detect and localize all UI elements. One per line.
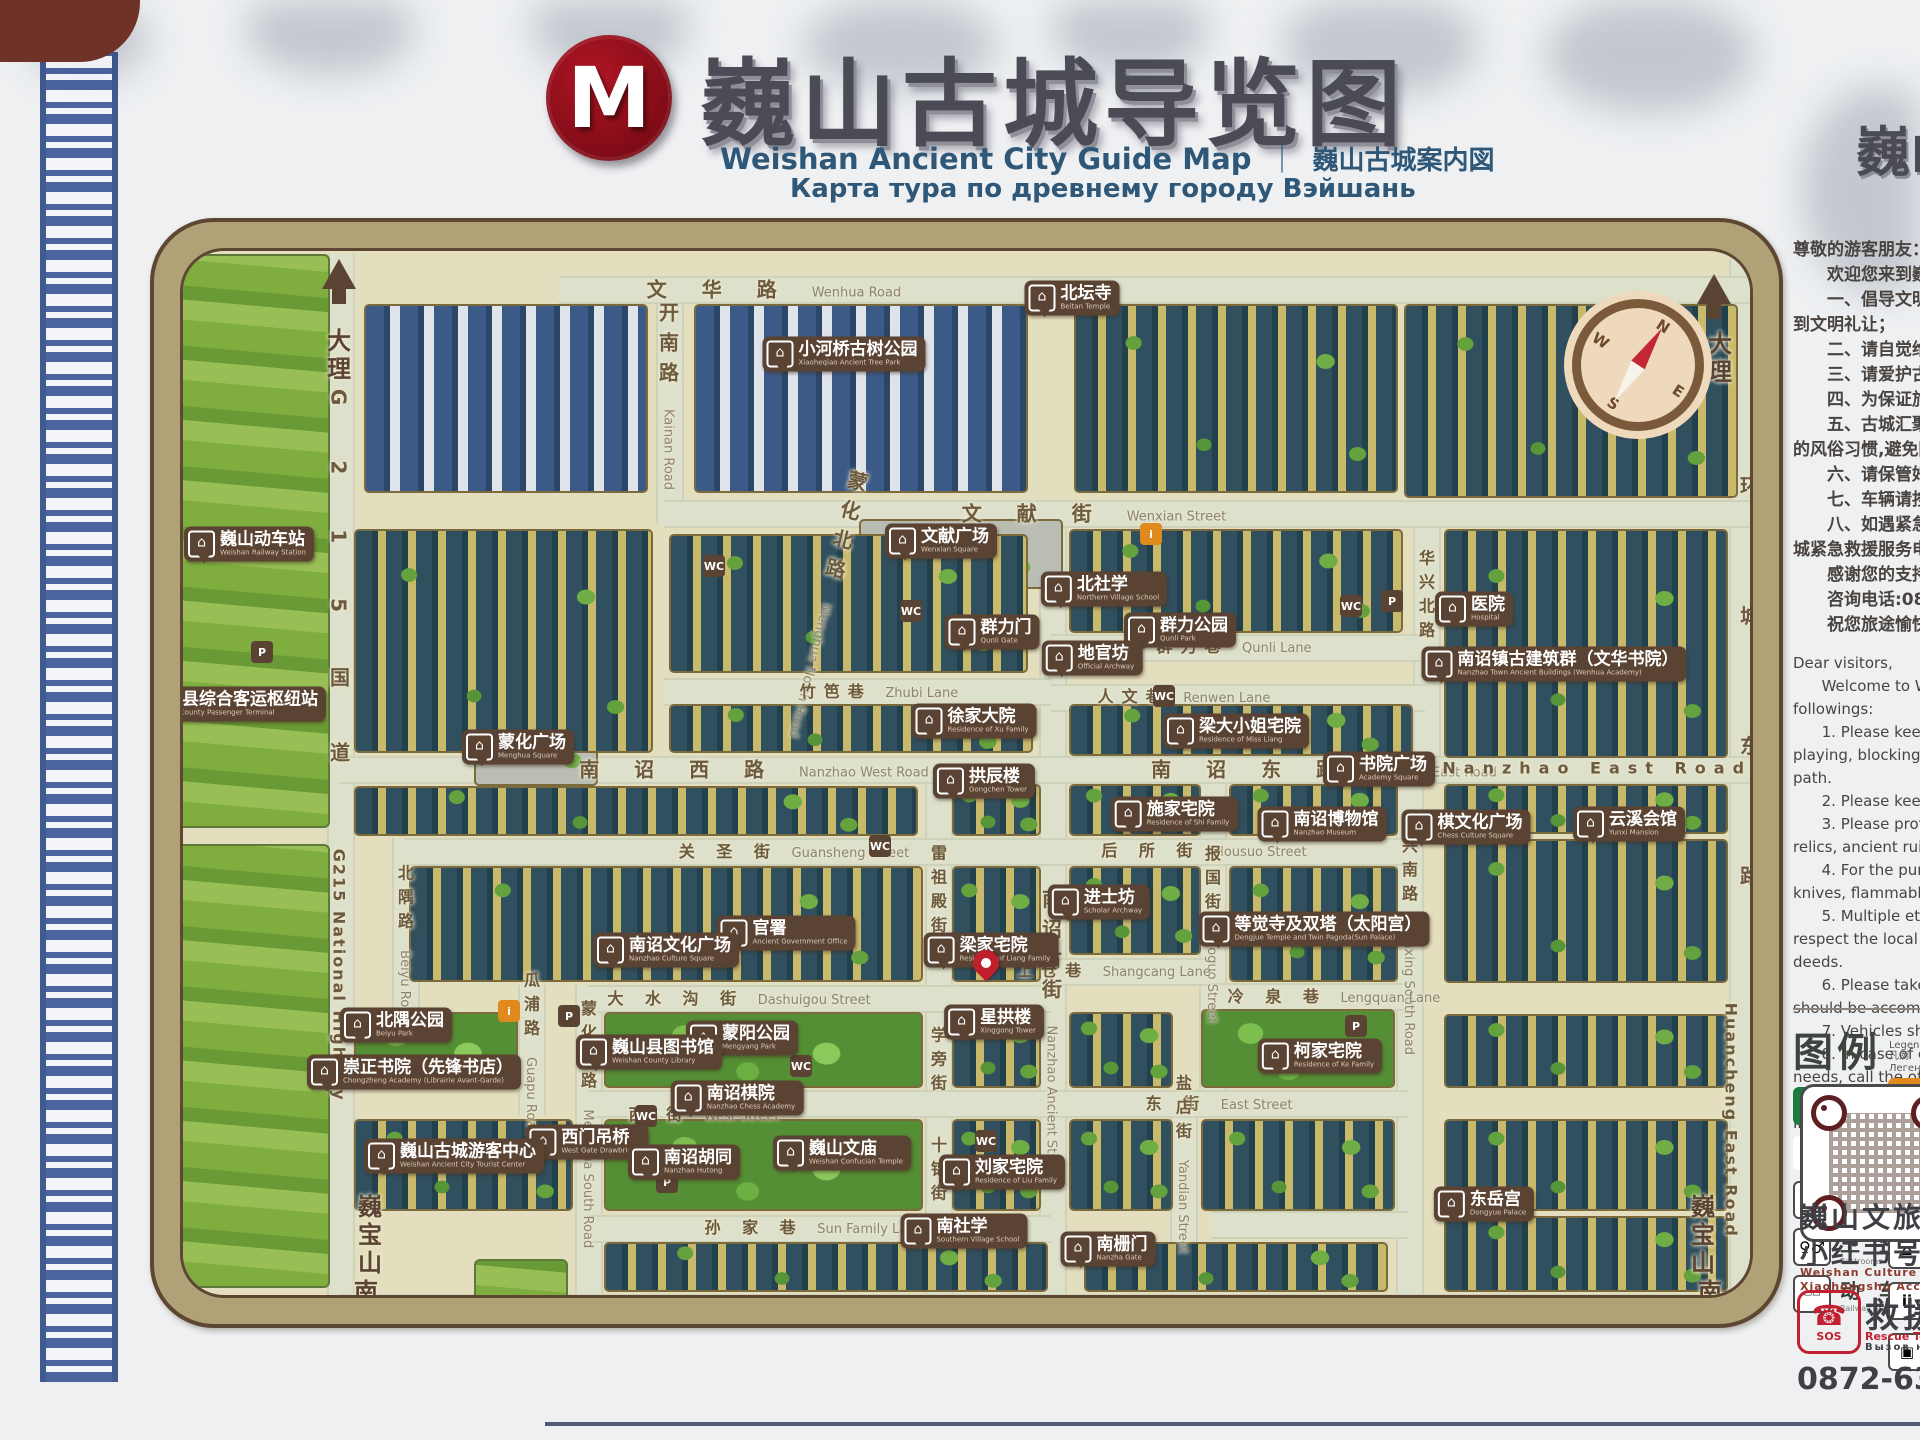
poi-pictogram-icon: ⌂ <box>580 1039 607 1066</box>
poi-pictogram-icon: ⌂ <box>937 768 964 795</box>
notice-zh-line: 八、如遇紧急状况请 <box>1793 513 1920 538</box>
road-label: 竹笆巷 Zhubi Lane <box>800 678 958 702</box>
poi-label[interactable]: ⌂ 北坛寺Beitan Temple <box>1025 281 1120 316</box>
notice-zh-line: 到文明礼让； <box>1793 313 1920 338</box>
poi-label[interactable]: ⌂ 等觉寺及双塔（太阳宫）Dengjue Temple and Twin Pag… <box>1199 912 1430 947</box>
notice-zh-line: 感谢您的支持与配合 <box>1793 563 1920 588</box>
map-canvas: NE SW 文 华 路 Wenhua Road开南路 Kainan Road文 … <box>180 248 1753 1298</box>
sign-bottom-edge <box>545 1422 1920 1426</box>
amenity-icon: i <box>498 1000 520 1022</box>
amenity-icon: WC <box>703 555 725 577</box>
poi-pictogram-icon: ⌂ <box>632 1149 659 1176</box>
title-divider: ｜ <box>1267 142 1296 176</box>
road-label: 文 献 街 Wenxian Street <box>962 498 1226 527</box>
direction-label: 巍宝山 <box>1684 1194 1719 1278</box>
poi-label[interactable]: ⌂ 南诏胡同Nanzhao Hutong <box>628 1145 740 1180</box>
road-label: Nanzhao East Road <box>1442 759 1753 778</box>
poi-pictogram-icon: ⌂ <box>368 1143 395 1170</box>
amenity-icon: P <box>1345 1015 1367 1037</box>
poi-label[interactable]: ⌂ 南诏镇古建筑群（文华书院）Nanzhao Town Ancient Buil… <box>1422 647 1687 682</box>
poi-label[interactable]: ⌂ 巍山文庙Weishan Confucian Temple <box>773 1136 911 1171</box>
notice-en-line: playing, blocking roads and <box>1793 744 1920 767</box>
poi-pictogram-icon: ⌂ <box>948 1009 975 1036</box>
poi-pictogram-icon: ⌂ <box>675 1085 702 1112</box>
poi-label[interactable]: ⌂ 南栅门Nanzha Gate <box>1061 1232 1156 1267</box>
poi-pictogram-icon: ⌂ <box>1065 1236 1092 1263</box>
map-frame: NE SW 文 华 路 Wenhua Road开南路 Kainan Road文 … <box>150 218 1783 1328</box>
legend-title-jp: 凡例 <box>1889 1051 1920 1063</box>
notice-zh-line: 咨询电话:0872—63 <box>1793 588 1920 613</box>
poi-label[interactable]: ⌂ 梁大小姐宅院Residence of Miss Liang <box>1163 714 1309 749</box>
notice-zh-line: 祝您旅途愉快！ <box>1793 613 1920 638</box>
title-ru: Карта тура по древнему городу Вэйшань <box>790 174 1416 204</box>
panel-divider <box>1793 1008 1920 1010</box>
legend-title-en: Legend <box>1889 1040 1920 1052</box>
poi-pictogram-icon: ⌂ <box>767 341 794 368</box>
road-label: 北隅路 Beiyu Road <box>392 865 416 1024</box>
poi-label[interactable]: ⌂ 柯家宅院Residence of Ke Family <box>1258 1039 1382 1074</box>
poi-label[interactable]: ⌂ 书院广场Academy Square <box>1323 752 1435 787</box>
poi-label[interactable]: ⌂ 北隅公园Beiyu Park <box>340 1008 452 1043</box>
poi-label[interactable]: ⌂ 地官坊Official Archway <box>1042 641 1143 676</box>
notice-en-line: 3. Please protect the re <box>1793 813 1920 836</box>
poi-pictogram-icon: ⌂ <box>1327 756 1354 783</box>
poi-pictogram-icon: ⌂ <box>1438 1191 1465 1218</box>
road-label: 东 街 East Street <box>1146 1090 1293 1114</box>
sign-left-decorative-border <box>40 52 118 1382</box>
direction-label: 大理 <box>1701 331 1736 387</box>
notice-en-line: knives, flammable and explo <box>1793 882 1920 905</box>
poi-label[interactable]: ⌂ 群力门Qunli Gate <box>945 615 1040 650</box>
notice-en-line: 5. Multiple ethnic cultu <box>1793 905 1920 928</box>
poi-label[interactable]: ⌂ 巍山县综合客运枢纽站Weishan County Passenger Ter… <box>180 687 326 722</box>
poi-label[interactable]: ⌂ 南诏博物馆Nanzhao Museum <box>1258 807 1387 842</box>
map-scenery <box>694 304 1028 493</box>
poi-label[interactable]: ⌂ 蒙化广场Menghua Square <box>462 730 574 765</box>
road-label: 孙 家 巷 Sun Family Lane <box>704 1214 923 1238</box>
map-scenery <box>364 304 648 493</box>
notice-zh-line: 四、为保证旅客安全 <box>1793 388 1920 413</box>
poi-pictogram-icon: ⌂ <box>1045 576 1072 603</box>
road-label: G215国道 <box>325 389 354 879</box>
notice-zh-line: 尊敬的游客朋友： <box>1793 238 1920 263</box>
notice-en-line: path. <box>1793 767 1920 790</box>
poi-pictogram-icon: ⌂ <box>1167 718 1194 745</box>
amenity-icon: i <box>1140 523 1162 545</box>
poi-label[interactable]: ⌂ 医院Hospital <box>1435 592 1513 627</box>
map-scenery <box>1201 1119 1395 1211</box>
poi-pictogram-icon: ⌂ <box>466 734 493 761</box>
map-scenery <box>354 529 653 753</box>
road-label: 大 水 沟 街 Dashuigou Street <box>607 985 870 1009</box>
poi-pictogram-icon: ⌂ <box>943 1159 970 1186</box>
poi-pictogram-icon: ⌂ <box>1046 645 1073 672</box>
notice-zh-line: 欢迎您来到巍山古城 <box>1793 263 1920 288</box>
poi-label[interactable]: ⌂ 巍山动车站Weishan Railway Station <box>184 527 314 562</box>
poi-label[interactable]: ⌂ 文献广场Wenxian Square <box>885 524 997 559</box>
map-scenery <box>604 1242 1048 1292</box>
notice-en-line: Dear visitors, <box>1793 652 1920 675</box>
notice-en-line: respect the local customs d <box>1793 928 1920 951</box>
poi-pictogram-icon: ⌂ <box>1029 285 1056 312</box>
poi-label[interactable]: ⌂ 南社学Southern Village School <box>900 1214 1027 1249</box>
notice-zh-line: 三、请爱护古城内的 <box>1793 363 1920 388</box>
road-label: 华兴北路 <box>1413 549 1437 659</box>
map-scenery <box>1074 304 1398 493</box>
poi-label[interactable]: ⌂ 进士坊Scholar Archway <box>1048 885 1150 920</box>
poi-pictogram-icon: ⌂ <box>1439 596 1466 623</box>
poi-pictogram-icon: ⌂ <box>928 937 955 964</box>
poi-pictogram-icon: ⌂ <box>311 1059 338 1086</box>
amenity-icon: WC <box>1153 685 1175 707</box>
notice-zh-line: 一、倡导文明游览， <box>1793 288 1920 313</box>
road-label: Huancheng East Road <box>1722 1003 1741 1246</box>
amenity-icon: P <box>558 1005 580 1027</box>
poi-label[interactable]: ⌂ 南诏文化广场Nanzhao Culture Square <box>593 933 739 968</box>
poi-label[interactable]: ⌂ 小河桥古树公园Xiaoheqiao Ancient Tree Park <box>763 337 926 372</box>
poi-label[interactable]: ⌂ 巍山古城游客中心Weishan Ancient City Tourist C… <box>364 1139 544 1174</box>
road-label: 开南路 Kainan Road <box>654 302 683 490</box>
poi-pictogram-icon: ⌂ <box>777 1140 804 1167</box>
notice-zh-line: 五、古城汇聚了多民 <box>1793 413 1920 438</box>
poi-pictogram-icon: ⌂ <box>1406 814 1433 841</box>
notice-en-line: Welcome to Weishan A <box>1793 675 1920 698</box>
road-label: 学旁街 <box>925 1026 949 1112</box>
direction-label: 南涧 <box>347 1279 382 1298</box>
road-label: 人文巷 Renwen Lane <box>1098 683 1271 707</box>
qr-caption-zh1: 巍山文旅 <box>1800 1196 1920 1236</box>
notice-zh-line: 二、请自觉维护古城 <box>1793 338 1920 363</box>
road-label: 瓜浦路 Guapu Road <box>518 971 542 1136</box>
notice-zh-line: 六、请保管好随身携 <box>1793 463 1920 488</box>
poi-label[interactable]: ⌂ 拱辰楼Gongchen Tower <box>933 764 1035 799</box>
poi-label[interactable]: ⌂ 北社学Northern Village School <box>1041 572 1167 607</box>
notice-en-line: relics, ancient ruins and anc <box>1793 836 1920 859</box>
qr-caption-en1: Weishan Culture & Tourism <box>1800 1266 1920 1279</box>
map-scenery <box>1444 839 1728 983</box>
road-label: 南 诏 西 路 Nanzhao West Road <box>579 754 929 783</box>
poi-pictogram-icon: ⌂ <box>1115 801 1142 828</box>
amenity-icon: P <box>251 641 273 663</box>
notice-en-line: deeds. <box>1793 951 1920 974</box>
road-label: 冷 泉 巷 Lengquan Lane <box>1228 983 1441 1007</box>
poi-label[interactable]: ⌂ 施家宅院Residence of Shi Family <box>1111 797 1238 832</box>
adjacent-sign-title-partial: 巍山 <box>1856 108 1920 187</box>
poi-label[interactable]: ⌂ 星拱楼Xinggong Tower <box>944 1005 1044 1040</box>
poi-label[interactable]: ⌂ 东岳宫Dongyue Palace <box>1434 1187 1534 1222</box>
sos-phone-icon: ☎SOS <box>1797 1290 1861 1354</box>
notice-en-line: 4. For the purpose of sa <box>1793 859 1920 882</box>
poi-pictogram-icon: ⌂ <box>916 708 943 735</box>
poi-label[interactable]: ⌂ 南诏棋院Nanzhao Chess Academy <box>671 1081 804 1116</box>
poi-label[interactable]: ⌂ 徐家大院Residence of Xu Family <box>912 704 1037 739</box>
amenity-icon: WC <box>1340 595 1362 617</box>
legend-title: 图例 <box>1793 1020 1881 1078</box>
poi-pictogram-icon: ⌂ <box>1426 651 1453 678</box>
rescue-phone-number: 0872-635293 <box>1797 1362 1920 1397</box>
notice-zh-line: 七、车辆请按规定的 <box>1793 488 1920 513</box>
amenity-icon: P <box>1381 590 1403 612</box>
title-en: Weishan Ancient City Guide Map <box>720 142 1251 176</box>
amenity-icon: WC <box>790 1055 812 1077</box>
m-logo: M <box>546 35 672 161</box>
poi-pictogram-icon: ⌂ <box>949 619 976 646</box>
notice-en-line: followings: <box>1793 698 1920 721</box>
title-jp: 巍山古城案内図 <box>1312 146 1494 176</box>
map-scenery <box>474 1259 568 1298</box>
map-scenery <box>1211 1211 1408 1239</box>
amenity-icon: WC <box>869 835 891 857</box>
amenity-icon: WC <box>975 1130 997 1152</box>
poi-label[interactable]: ⌂ 棋文化广场Chess Culture Square <box>1402 810 1531 845</box>
page-subtitle: Weishan Ancient City Guide Map｜巍山古城案内図 <box>720 136 1480 178</box>
road-label: 环 城 南 路 Huancheng South Road <box>816 1293 1252 1299</box>
poi-pictogram-icon: ⌂ <box>188 531 215 558</box>
notice-zh-line: 的风俗习惯,避免因言行举 <box>1793 438 1920 463</box>
notice-zh: 尊敬的游客朋友： 欢迎您来到巍山古城 一、倡导文明游览，到文明礼让； 二、请自觉… <box>1793 238 1920 638</box>
map-scenery <box>1444 1014 1728 1088</box>
poi-label[interactable]: ⌂ 巍山县图书馆Weishan County Library <box>576 1035 722 1070</box>
poi-pictogram-icon: ⌂ <box>1203 916 1230 943</box>
notice-en-line: 2. Please keep the envi <box>1793 790 1920 813</box>
poi-pictogram-icon: ⌂ <box>904 1218 931 1245</box>
direction-arrow-dali-east <box>1697 274 1731 304</box>
notice-en-line: 1. Please keep good <box>1793 721 1920 744</box>
poi-label[interactable]: ⌂ 崇正书院（先锋书店）Chongzheng Academy (Librairi… <box>307 1055 521 1090</box>
map-scenery <box>1069 1012 1173 1088</box>
poi-pictogram-icon: ⌂ <box>1052 889 1079 916</box>
poi-label[interactable]: ⌂ 刘家宅院Residence of Liu Family <box>939 1155 1065 1190</box>
notice-en-line: 6. Please take good car <box>1793 974 1920 997</box>
poi-label[interactable]: ⌂ 云溪会馆Yunxi Mansion <box>1573 807 1685 842</box>
road-label: 盐店街 Yandian Street <box>1170 1074 1194 1254</box>
poi-pictogram-icon: ⌂ <box>1128 617 1155 644</box>
poi-pictogram-icon: ⌂ <box>889 528 916 555</box>
poi-pictogram-icon: ⌂ <box>1262 1043 1289 1070</box>
notice-zh-line: 城紧急救援服务电话,我们 <box>1793 538 1920 563</box>
direction-label: 南涧 <box>1691 1279 1726 1298</box>
poi-pictogram-icon: ⌂ <box>1577 811 1604 838</box>
rescue-tel-label-ru: Вызов на помощь <box>1865 1342 1920 1353</box>
direction-label: 巍宝山 <box>351 1194 386 1278</box>
direction-arrow-dali-west <box>322 259 356 289</box>
poi-pictogram-icon: ⌂ <box>597 937 624 964</box>
legend-title-ru: Легенда <box>1889 1063 1920 1075</box>
direction-label: 大理 <box>320 328 355 384</box>
map-scenery <box>354 786 918 836</box>
amenity-icon: WC <box>900 600 922 622</box>
road-label: 文 华 路 Wenhua Road <box>647 274 901 303</box>
poi-pictogram-icon: ⌂ <box>1262 811 1289 838</box>
map-scenery <box>1444 529 1728 758</box>
map-scenery <box>1069 1119 1173 1211</box>
poi-pictogram-icon: ⌂ <box>344 1012 371 1039</box>
sign-frame-corner <box>0 0 140 62</box>
